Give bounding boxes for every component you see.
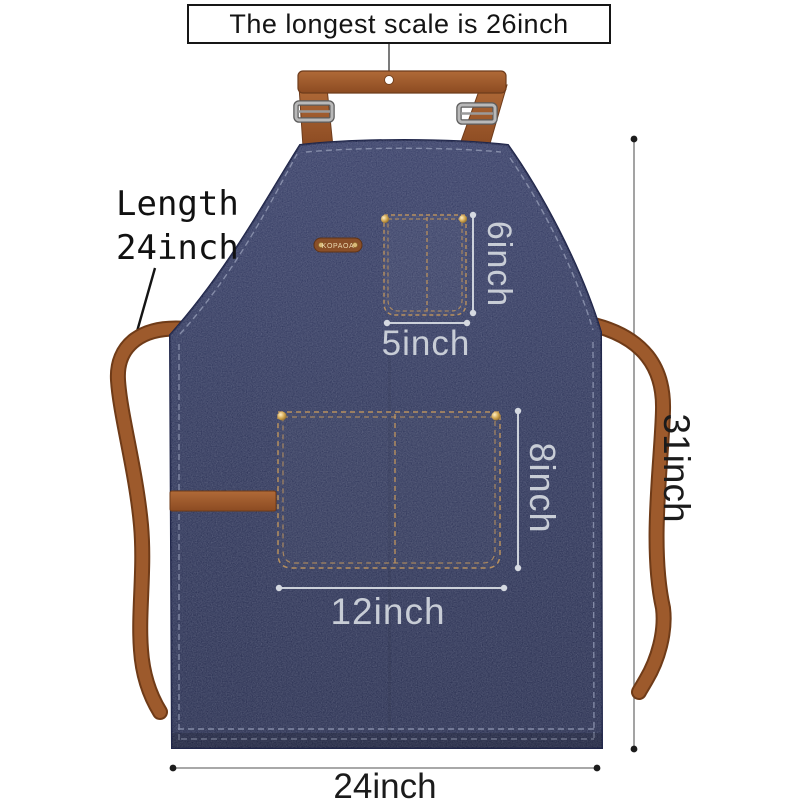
overall-height-dimension-line	[631, 136, 638, 753]
chest-pocket-rivet-right	[459, 215, 467, 223]
brand-patch: KOPAOA	[314, 238, 362, 252]
chest-pocket	[381, 215, 467, 315]
length-label: Length 24inch	[116, 182, 239, 270]
left-buckle-icon	[296, 103, 332, 120]
neck-strap-hole	[385, 76, 394, 85]
right-buckle-icon	[459, 105, 495, 122]
length-label-line2: 24inch	[116, 226, 239, 270]
neck-strap	[296, 71, 507, 147]
neck-strap-bar	[298, 71, 506, 93]
waist-pocket-rivet-left	[278, 412, 287, 421]
waist-pocket-height-label: 8inch	[521, 418, 561, 558]
neck-strap-right-drop	[459, 85, 507, 147]
product-dimension-diagram: KOPAOA	[0, 0, 800, 800]
waist-pocket-rivet-right	[492, 412, 501, 421]
length-label-line1: Length	[116, 182, 239, 226]
chest-pocket-height-label: 6inch	[478, 204, 516, 324]
overall-height-label: 31inch	[655, 388, 695, 548]
waist-pocket	[278, 412, 501, 569]
chest-pocket-rivet-left	[381, 215, 389, 223]
neck-strap-left-drop	[299, 86, 333, 147]
overall-width-label: 24inch	[295, 769, 475, 800]
top-note-box: The longest scale is 26inch	[187, 4, 611, 44]
chest-pocket-width-label: 5inch	[356, 326, 496, 363]
waist-pocket-width-label: 12inch	[308, 593, 468, 632]
front-waist-band	[170, 491, 276, 511]
brand-label-text: KOPAOA	[322, 243, 355, 250]
